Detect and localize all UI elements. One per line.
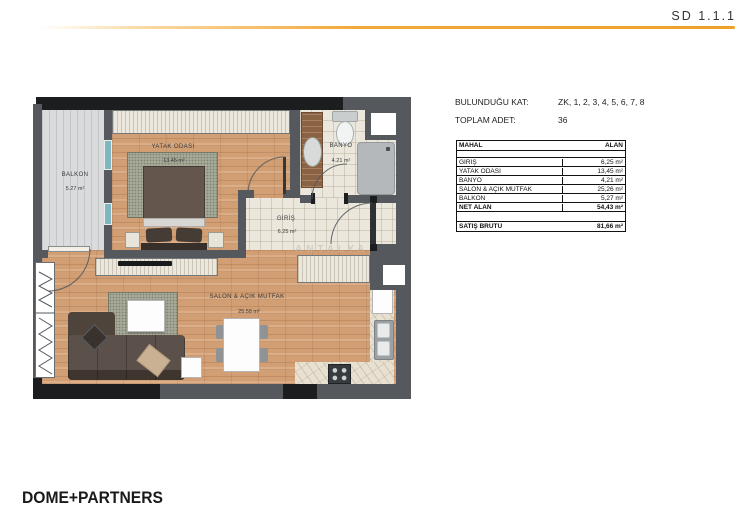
row-value: 5,27 m² (562, 195, 625, 202)
room-area-salon: 25.58 m² (238, 309, 260, 315)
row-value: 81,66 m² (562, 223, 625, 230)
count-value: 36 (558, 115, 567, 125)
table-spacer-row (457, 211, 625, 221)
area-table-header: MAHAL ALAN (457, 141, 625, 150)
sheet-code: SD 1.1.1 (671, 9, 736, 23)
table-row: SALON & AÇIK MUTFAK 25,26 m² (457, 184, 625, 193)
row-name: YATAK ODASI (457, 168, 562, 175)
table-row: YATAK ODASI 13,45 m² (457, 166, 625, 175)
row-value: 25,26 m² (562, 186, 625, 193)
room-label-balkon: BALKON (62, 172, 89, 178)
table-row-gross: SATIŞ BRÜTÜ 81,66 m² (457, 221, 625, 231)
floor-plan: BALKON 5.27 m² YATAK ODASI 13.45 m² BANY… (33, 95, 413, 400)
room-area-giris: 6.25 m² (278, 229, 297, 235)
row-value: 6,25 m² (562, 159, 625, 166)
count-label: TOPLAM ADET: (455, 115, 516, 125)
company-logo: DOME+PARTNERS (22, 489, 163, 506)
room-label-giris: GİRİŞ (277, 216, 295, 222)
floor-value: ZK, 1, 2, 3, 4, 5, 6, 7, 8 (558, 97, 644, 107)
row-name: BALKON (457, 195, 562, 202)
room-area-banyo: 4.21 m² (332, 158, 351, 164)
area-table: MAHAL ALAN GİRİŞ 6,25 m² YATAK ODASI 13,… (456, 140, 626, 232)
header-accent-rule (40, 26, 735, 29)
table-spacer-row (457, 150, 625, 157)
watermark: ANTALYA (295, 244, 368, 255)
room-area-balkon: 5.27 m² (66, 186, 85, 192)
room-label-salon: SALON & AÇIK MUTFAK (210, 294, 285, 300)
table-row: BALKON 5,27 m² (457, 193, 625, 202)
table-row: GİRİŞ 6,25 m² (457, 157, 625, 166)
row-value: 13,45 m² (562, 168, 625, 175)
row-name: NET ALAN (457, 204, 562, 211)
table-row: BANYO 4,21 m² (457, 175, 625, 184)
column-header-mahal: MAHAL (457, 142, 562, 149)
table-row-net: NET ALAN 54,43 m² (457, 202, 625, 211)
row-name: GİRİŞ (457, 159, 562, 166)
room-label-yatak-odasi: YATAK ODASI (151, 144, 194, 150)
room-label-banyo: BANYO (329, 143, 352, 149)
column-header-alan: ALAN (562, 142, 625, 149)
room-area-yatak-odasi: 13.45 m² (163, 158, 185, 164)
floor-label: BULUNDUĞU KAT: (455, 97, 529, 107)
row-value: 4,21 m² (562, 177, 625, 184)
row-value: 54,43 m² (562, 204, 625, 211)
row-name: SATIŞ BRÜTÜ (457, 223, 562, 230)
row-name: SALON & AÇIK MUTFAK (457, 186, 562, 193)
row-name: BANYO (457, 177, 562, 184)
